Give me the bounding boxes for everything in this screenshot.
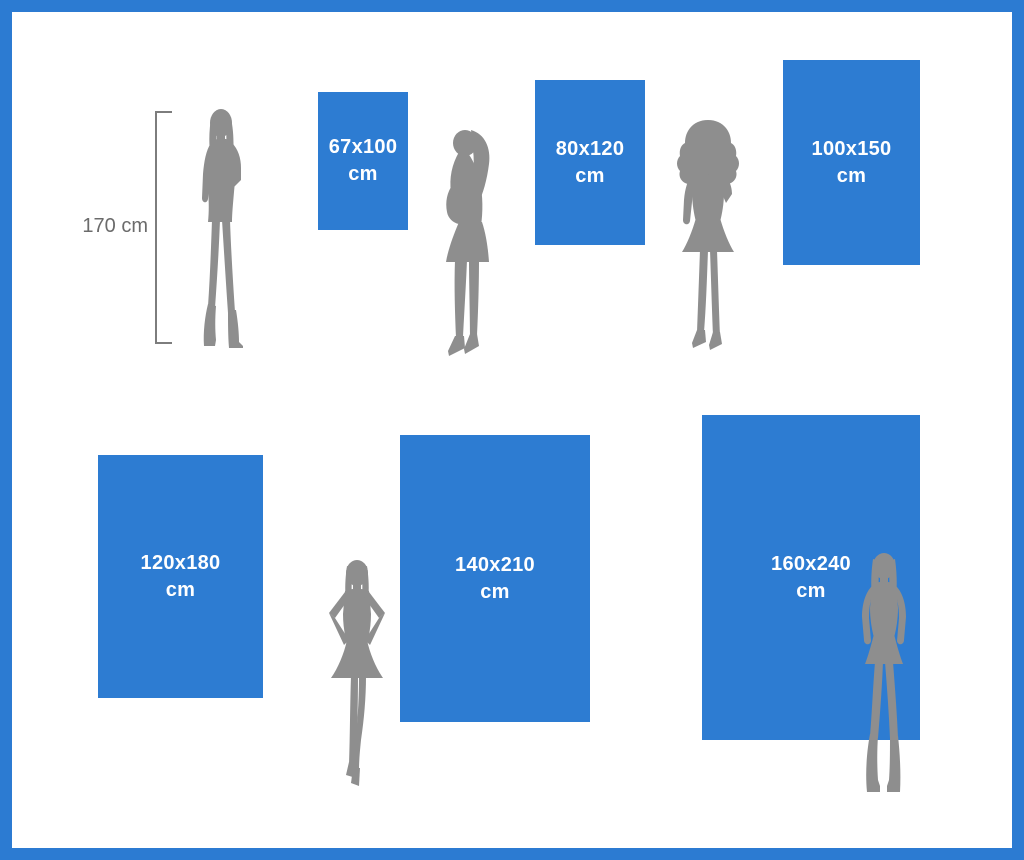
woman-silhouette-icon xyxy=(301,558,413,805)
size-label: 80x120 cm xyxy=(556,136,625,190)
woman-silhouette-curly-hair xyxy=(666,120,750,367)
woman-silhouette-side-profile xyxy=(437,126,515,362)
size-comparison-diagram: 170 cm 67x100 cm 80x120 cm 100x150 cm 12… xyxy=(0,0,1024,860)
size-label: 140x210 cm xyxy=(455,552,535,606)
height-bracket-bottom-tick xyxy=(155,342,172,344)
size-unit: cm xyxy=(812,163,892,190)
size-unit: cm xyxy=(455,579,535,606)
size-dims: 140x210 xyxy=(455,552,535,579)
size-rect-100x150: 100x150 cm xyxy=(783,60,920,265)
size-dims: 80x120 xyxy=(556,136,625,163)
woman-silhouette-icon xyxy=(437,126,515,362)
size-rect-120x180: 120x180 cm xyxy=(98,455,263,698)
size-label: 67x100 cm xyxy=(329,134,398,188)
height-bracket-top-tick xyxy=(155,111,172,113)
size-label: 100x150 cm xyxy=(812,136,892,190)
woman-silhouette-hands-on-hips xyxy=(301,558,413,805)
size-rect-67x100: 67x100 cm xyxy=(318,92,408,230)
size-dims: 120x180 xyxy=(141,550,221,577)
woman-silhouette-standing-boots xyxy=(836,552,932,800)
woman-silhouette-front-hand-on-hip xyxy=(191,108,257,348)
woman-silhouette-icon xyxy=(836,552,932,800)
size-unit: cm xyxy=(556,163,625,190)
woman-silhouette-icon xyxy=(666,120,750,367)
size-unit: cm xyxy=(141,577,221,604)
size-rect-80x120: 80x120 cm xyxy=(535,80,645,245)
size-label: 120x180 cm xyxy=(141,550,221,604)
size-unit: cm xyxy=(329,161,398,188)
reference-height-label: 170 cm xyxy=(76,215,148,238)
woman-silhouette-icon xyxy=(191,108,257,348)
size-dims: 100x150 xyxy=(812,136,892,163)
size-rect-140x210: 140x210 cm xyxy=(400,435,590,722)
size-dims: 67x100 xyxy=(329,134,398,161)
height-bracket-line xyxy=(155,111,157,344)
